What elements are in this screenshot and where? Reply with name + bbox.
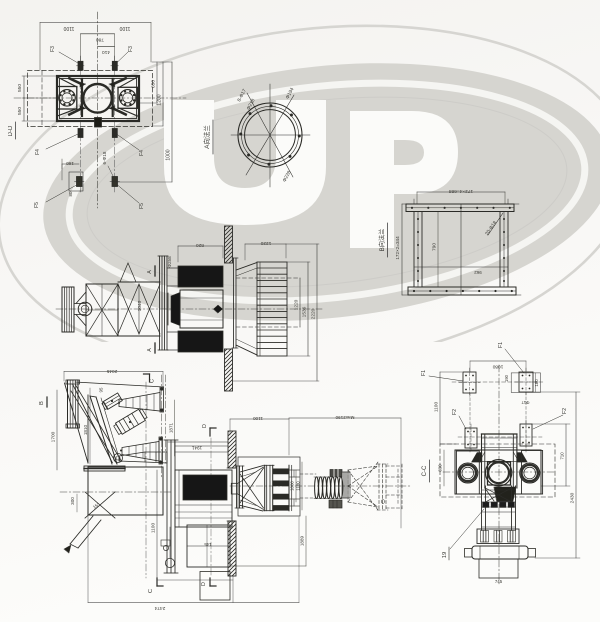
svg-text:1810: 1810 [83,424,88,435]
svg-text:Max2190: Max2190 [335,415,354,420]
svg-text:2045: 2045 [106,368,117,374]
svg-text:1080: 1080 [492,364,503,370]
svg-text:C: C [150,379,156,383]
svg-text:1889: 1889 [300,535,305,546]
svg-text:650: 650 [151,80,157,88]
svg-text:1100: 1100 [63,25,74,31]
svg-text:F2: F2 [452,409,458,415]
svg-text:95: 95 [99,387,104,392]
svg-text:1100: 1100 [119,25,130,31]
svg-text:180: 180 [534,379,539,387]
svg-text:1220: 1220 [294,299,300,310]
svg-text:1040: 1040 [137,300,143,311]
svg-text:A: A [147,270,153,274]
svg-text:1220: 1220 [260,240,271,246]
svg-text:745: 745 [495,579,503,584]
svg-text:C: C [148,589,154,593]
svg-text:780: 780 [96,36,104,42]
svg-text:6-Φ18: 6-Φ18 [102,151,107,164]
svg-text:1700: 1700 [51,431,57,442]
svg-text:Φ258: Φ258 [167,256,172,268]
svg-text:1100: 1100 [151,523,157,534]
svg-text:410: 410 [102,49,110,55]
svg-text:1180: 1180 [296,481,301,491]
svg-text:1100: 1100 [434,402,440,413]
svg-text:550: 550 [17,84,23,92]
svg-text:C-C: C-C [422,465,428,476]
svg-text:190: 190 [504,374,509,382]
svg-text:890: 890 [438,464,443,472]
svg-text:D-D: D-D [8,125,14,136]
svg-text:19: 19 [442,552,448,558]
svg-text:80: 80 [68,191,73,196]
svg-text:300: 300 [70,497,75,505]
svg-text:2220: 2220 [311,308,317,319]
svg-text:172×2=344: 172×2=344 [395,236,400,260]
svg-text:D: D [201,582,207,586]
svg-text:1000: 1000 [166,149,172,160]
svg-text:1941: 1941 [191,446,202,451]
svg-text:F3: F3 [50,46,56,52]
svg-text:F5: F5 [34,202,40,208]
svg-text:160: 160 [66,161,74,166]
svg-text:D: D [202,424,208,428]
svg-text:962: 962 [474,270,482,275]
svg-text:F1: F1 [498,342,504,348]
svg-text:F2: F2 [562,408,568,414]
svg-text:1200: 1200 [157,94,163,105]
svg-text:F1: F1 [421,370,427,376]
svg-text:710: 710 [560,452,565,460]
svg-text:B向法兰: B向法兰 [378,229,386,252]
svg-text:145: 145 [204,542,212,547]
svg-text:1871: 1871 [168,422,173,433]
svg-text:2430: 2430 [570,492,576,503]
svg-text:F5: F5 [139,203,145,209]
svg-text:2474: 2474 [154,605,165,611]
svg-text:550: 550 [17,107,23,115]
svg-text:1536: 1536 [302,306,308,317]
svg-text:820: 820 [196,242,204,248]
svg-text:F3: F3 [128,46,134,52]
svg-text:1080: 1080 [290,481,295,491]
svg-text:Φ17: Φ17 [521,400,530,405]
svg-text:B: B [39,401,45,405]
svg-text:172×4=688: 172×4=688 [449,188,474,194]
svg-text:1100: 1100 [253,416,263,421]
svg-text:790: 790 [432,243,438,251]
svg-text:A: A [147,348,153,352]
svg-text:A向法兰: A向法兰 [202,125,211,149]
svg-text:F4: F4 [139,150,145,156]
svg-text:F4: F4 [35,149,41,155]
